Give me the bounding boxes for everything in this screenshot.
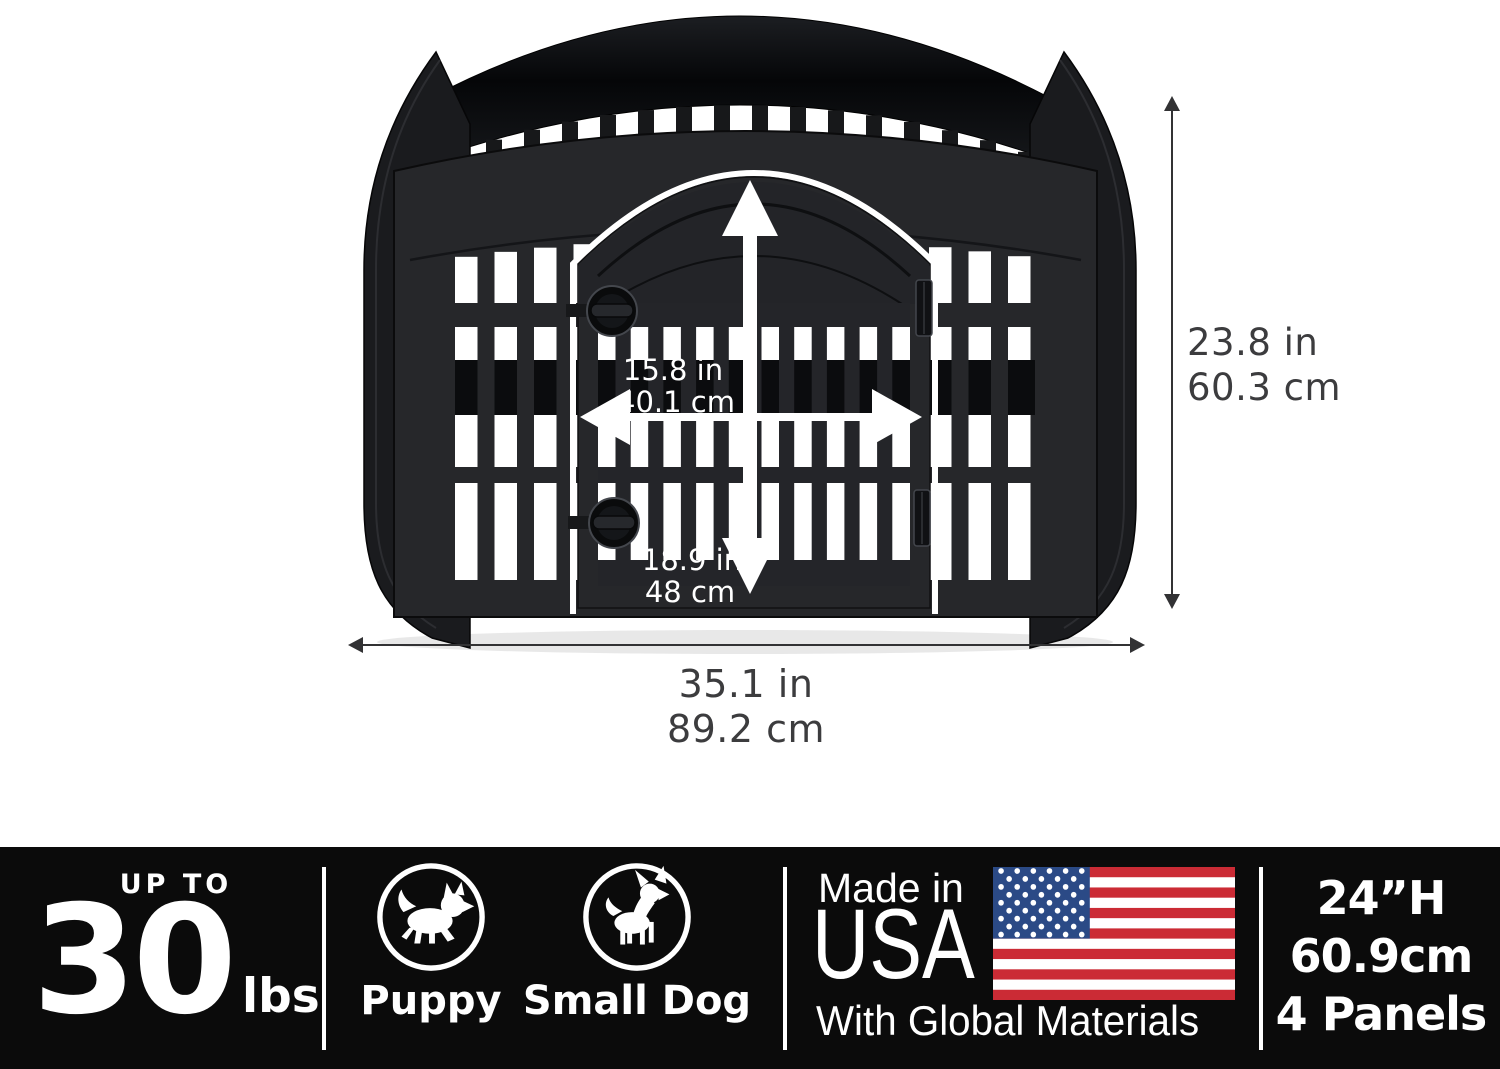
feature-banner: UP TO 30 lbs [0,847,1500,1069]
pet-badge-puppy: Puppy [349,861,513,1024]
arrow-down-icon [1164,594,1180,609]
door-width-label-cm: 40.1 cm [617,385,735,419]
pet-badge-small-dog: Small Dog [522,861,752,1024]
spec-height: 24”H [1268,869,1494,927]
weight-limit-badge: UP TO 30 lbs [42,869,310,1023]
pen-width-arrow [360,644,1132,646]
pen-width-label: 35.1 in 89.2 cm [566,662,926,752]
puppy-icon [374,861,488,975]
global-materials-text: With Global Materials [816,997,1199,1045]
spec-panels: 4 Panels [1268,985,1494,1043]
spec-height-metric: 60.9cm [1268,927,1494,985]
weight-value: 30 [32,900,233,1023]
product-dimension-diagram: 15.8 in 40.1 cm 18.9 in 48 cm 23.8 in 60… [0,0,1500,1069]
usa-text: USA [812,894,975,993]
pen-height-arrow [1171,106,1173,598]
door-width-label-in: 15.8 in [623,353,723,387]
door-hinge-lower [914,490,930,546]
door-knob-upper [587,286,637,336]
divider [322,867,326,1050]
divider [783,867,787,1050]
panel-specs-badge: 24”H 60.9cm 4 Panels [1268,869,1494,1043]
arrow-right-icon [1130,637,1145,653]
door-knob-lower [589,498,639,548]
weight-unit: lbs [242,973,320,1020]
pet-label: Puppy [349,978,513,1024]
playpen-illustration: 15.8 in 40.1 cm 18.9 in 48 cm [340,8,1160,663]
divider [1259,867,1263,1050]
floor-shadow [377,630,1113,654]
arrow-left-icon [348,637,363,653]
door-hinge-upper [916,280,932,336]
door-height-label-cm: 48 cm [645,575,735,609]
arrow-up-icon [1164,96,1180,111]
pen-height-label: 23.8 in 60.3 cm [1187,320,1341,410]
door-height-label-in: 18.9 in [642,543,742,577]
us-flag-icon [993,867,1235,1000]
pet-label: Small Dog [522,978,752,1024]
small-dog-icon [580,861,694,975]
